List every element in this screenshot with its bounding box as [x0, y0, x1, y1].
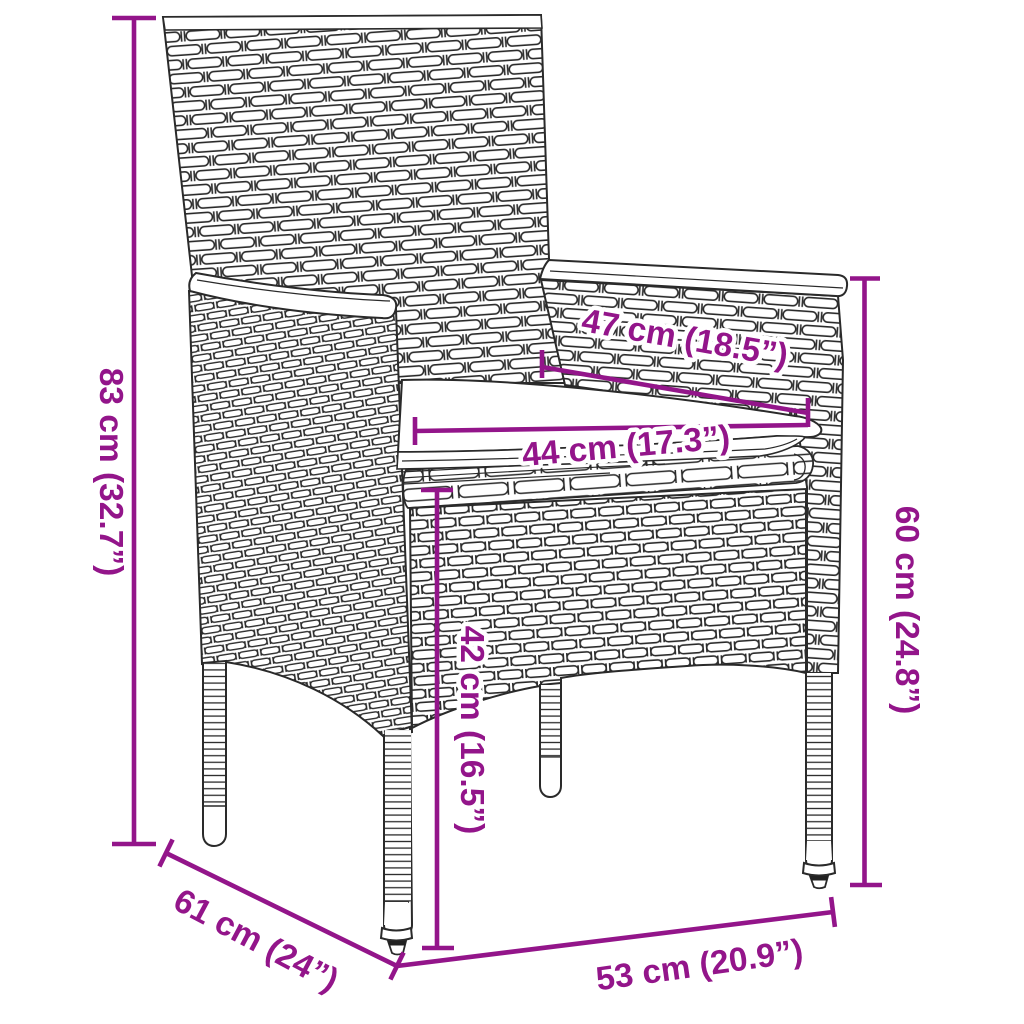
svg-text:60 cm (24.8”): 60 cm (24.8”): [888, 506, 925, 715]
svg-text:42 cm (16.5”): 42 cm (16.5”): [453, 626, 490, 835]
svg-text:83 cm (32.7”): 83 cm (32.7”): [92, 368, 129, 577]
